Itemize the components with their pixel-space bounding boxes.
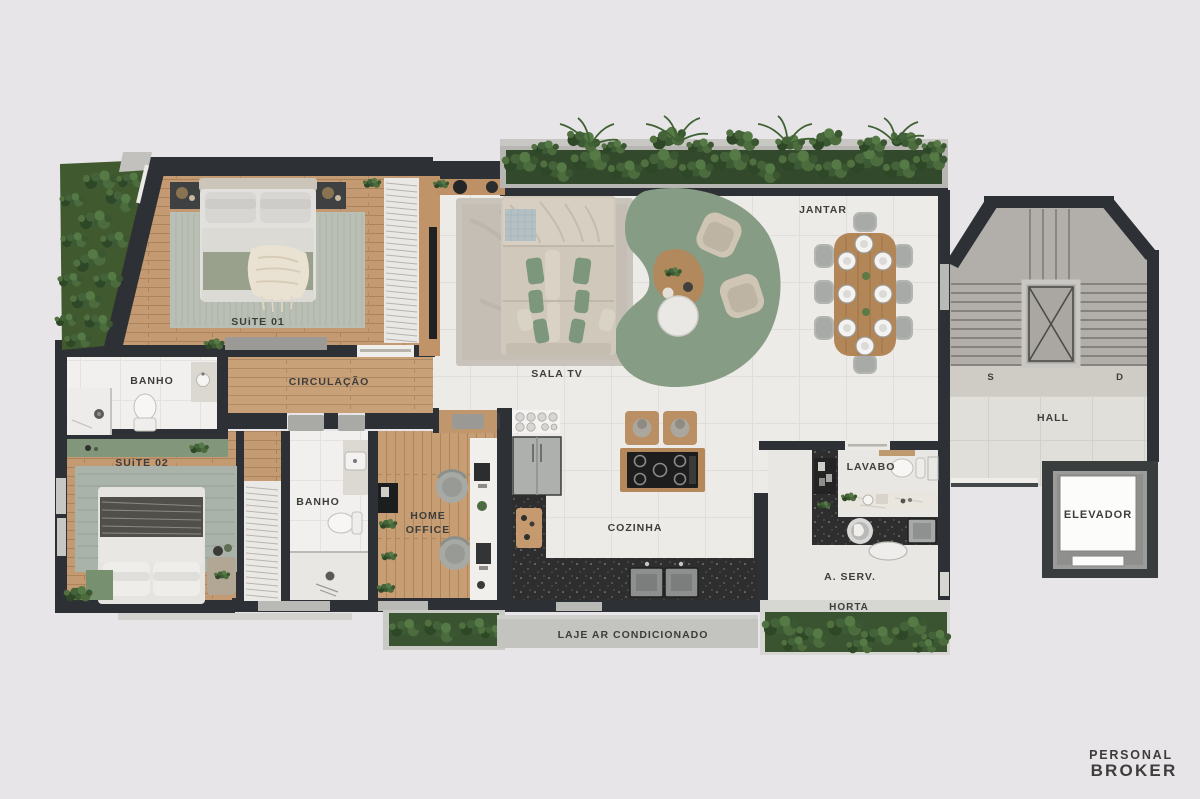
svg-text:SALA TV: SALA TV (531, 368, 583, 380)
svg-text:SUiTE 02: SUiTE 02 (115, 457, 169, 469)
svg-text:HALL: HALL (1037, 412, 1069, 424)
svg-text:COZINHA: COZINHA (608, 522, 663, 534)
svg-text:SUiTE 01: SUiTE 01 (231, 316, 285, 328)
svg-text:HORTA: HORTA (829, 602, 869, 613)
svg-text:BROKER: BROKER (1091, 761, 1178, 780)
svg-text:LAVABO: LAVABO (847, 461, 896, 473)
svg-text:D: D (1116, 372, 1124, 383)
svg-text:HOME: HOME (410, 510, 446, 522)
svg-text:JANTAR: JANTAR (799, 204, 847, 216)
svg-text:LAJE AR CONDICIONADO: LAJE AR CONDICIONADO (558, 629, 709, 641)
svg-text:CIRCULAÇÃO: CIRCULAÇÃO (289, 375, 370, 388)
svg-text:OFFICE: OFFICE (406, 524, 451, 536)
svg-text:BANHO: BANHO (130, 375, 174, 387)
svg-text:A. SERV.: A. SERV. (824, 571, 876, 583)
svg-text:BANHO: BANHO (296, 496, 340, 508)
svg-text:ELEVADOR: ELEVADOR (1064, 509, 1132, 521)
svg-text:PERSONAL: PERSONAL (1089, 748, 1173, 762)
svg-text:S: S (987, 372, 994, 383)
